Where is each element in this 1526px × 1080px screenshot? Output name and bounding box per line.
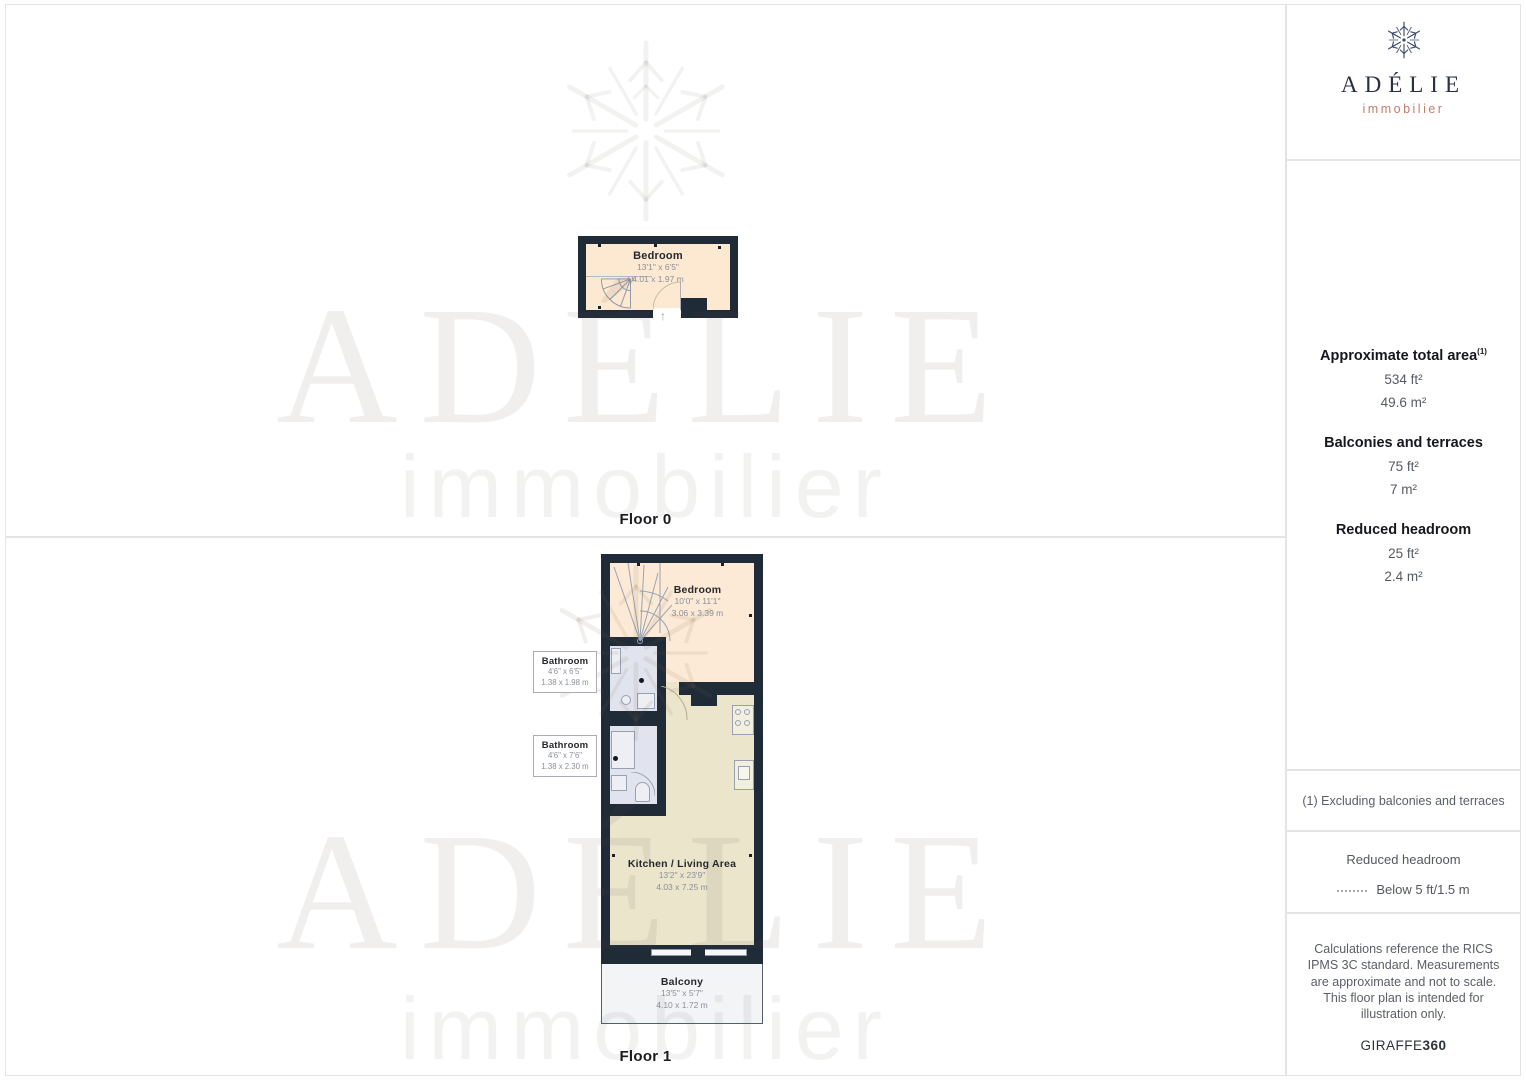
footnote-text: (1) Excluding balconies and terraces — [1302, 794, 1504, 808]
room-dims-ft: 4'6" x 6'5" — [536, 667, 594, 678]
entrance-arrow-icon: ↑ — [660, 310, 666, 322]
credit-brand: GIRAFFE — [1360, 1038, 1422, 1053]
logo-tagline: immobilier — [1287, 102, 1520, 116]
floor1-kitchen-floor — [610, 816, 666, 945]
floor0-label: Floor 0 — [6, 511, 1285, 528]
floor1-plan: Bedroom 10'0" x 11'1" 3.06 x 3.39 m Kitc… — [601, 554, 763, 964]
disclaimer-box: Calculations reference the RICS IPMS 3C … — [1286, 913, 1521, 1076]
measure-tick — [637, 563, 640, 566]
door-hinge-dot — [613, 756, 618, 761]
headroom-title: Reduced headroom — [1287, 522, 1520, 538]
interior-wall — [601, 804, 666, 816]
disclaimer-text: Calculations reference the RICS IPMS 3C … — [1300, 941, 1508, 1022]
shower-tray-icon — [637, 693, 655, 709]
balconies-ft: 75 ft² — [1287, 459, 1520, 474]
legend-box: Reduced headroom Below 5 ft/1.5 m — [1286, 831, 1521, 913]
room-dims-m: 1.38 x 2.30 m — [536, 762, 594, 773]
measure-tick — [612, 854, 615, 857]
floor0-bedroom-floor — [586, 244, 730, 310]
measure-tick — [721, 563, 724, 566]
room-dims-m: 4.10 x 1.72 m — [602, 1000, 762, 1012]
floor0-panel: ↑ Bedroom 13'1" x 6'5" 4.01 x 1.97 m — [5, 4, 1286, 537]
wall-stub — [681, 298, 707, 318]
headroom-ft: 25 ft² — [1287, 546, 1520, 561]
room-name: Bathroom — [536, 656, 594, 667]
balconies-group: Balconies and terraces 75 ft² 7 m² — [1287, 435, 1520, 497]
balcony: Balcony 13'5" x 5'7" 4.10 x 1.72 m — [601, 964, 763, 1024]
total-area-title: Approximate total area(1) — [1287, 347, 1520, 364]
headroom-m: 2.4 m² — [1287, 569, 1520, 584]
sink-icon — [611, 775, 627, 791]
floor1-panel: Bedroom 10'0" x 11'1" 3.06 x 3.39 m Kitc… — [5, 537, 1286, 1076]
logo-box: ADÉLIE immobilier — [1286, 4, 1521, 160]
toilet-icon — [635, 782, 650, 802]
stair-edge-line — [586, 276, 652, 277]
giraffe360-credit: GIRAFFE360 — [1287, 1038, 1520, 1053]
floor1-label: Floor 1 — [6, 1048, 1285, 1065]
balconies-m: 7 m² — [1287, 482, 1520, 497]
room-name: Balcony — [602, 976, 762, 988]
shower-icon — [611, 731, 635, 769]
total-area-m: 49.6 m² — [1287, 395, 1520, 410]
interior-wall — [679, 682, 763, 695]
floor0-plan: ↑ Bedroom 13'1" x 6'5" 4.01 x 1.97 m — [578, 236, 738, 318]
measure-tick — [598, 306, 601, 309]
legend-label: Below 5 ft/1.5 m — [1376, 882, 1469, 897]
stove-icon — [732, 705, 754, 735]
logo-name: ADÉLIE — [1287, 72, 1520, 98]
total-area-group: Approximate total area(1) 534 ft² 49.6 m… — [1287, 347, 1520, 410]
snowflake-watermark-icon — [548, 33, 744, 229]
measure-tick — [749, 854, 752, 857]
total-area-ft: 534 ft² — [1287, 372, 1520, 387]
room-name: Bathroom — [536, 740, 594, 751]
legend-title: Reduced headroom — [1287, 852, 1520, 867]
credit-suffix: 360 — [1422, 1038, 1446, 1053]
door-hinge-dot — [639, 678, 644, 683]
room-dims-m: 1.38 x 1.98 m — [536, 678, 594, 689]
balconies-title: Balconies and terraces — [1287, 435, 1520, 451]
area-summary-box: Approximate total area(1) 534 ft² 49.6 m… — [1286, 160, 1521, 770]
sink-icon — [621, 695, 631, 705]
balcony-label: Balcony 13'5" x 5'7" 4.10 x 1.72 m — [602, 976, 762, 1012]
kitchen-sink-icon — [734, 760, 754, 790]
room-dims-ft: 4'6" x 7'6" — [536, 751, 594, 762]
footnote-box: (1) Excluding balconies and terraces — [1286, 770, 1521, 831]
measure-tick — [749, 614, 752, 617]
dashed-line-icon — [1337, 890, 1367, 892]
room-dims-ft: 13'5" x 5'7" — [602, 988, 762, 1000]
floorplan-page: ↑ Bedroom 13'1" x 6'5" 4.01 x 1.97 m — [0, 0, 1526, 1080]
total-area-title-text: Approximate total area — [1320, 348, 1477, 364]
shower-icon — [611, 648, 621, 674]
door-opening — [653, 308, 681, 318]
bathroom1-callout: Bathroom 4'6" x 6'5" 1.38 x 1.98 m — [533, 651, 597, 693]
bathroom2-callout: Bathroom 4'6" x 7'6" 1.38 x 2.30 m — [533, 735, 597, 777]
measure-tick — [718, 246, 721, 249]
measure-tick — [598, 244, 601, 247]
door-block — [691, 947, 705, 957]
legend-row: Below 5 ft/1.5 m — [1287, 882, 1520, 897]
headroom-group: Reduced headroom 25 ft² 2.4 m² — [1287, 522, 1520, 584]
total-area-footnote-marker: (1) — [1477, 347, 1487, 356]
measure-tick — [654, 244, 657, 247]
interior-wall — [691, 695, 717, 706]
interior-wall — [601, 711, 663, 726]
interior-wall — [657, 637, 666, 816]
logo-snowflake-icon — [1383, 19, 1425, 61]
